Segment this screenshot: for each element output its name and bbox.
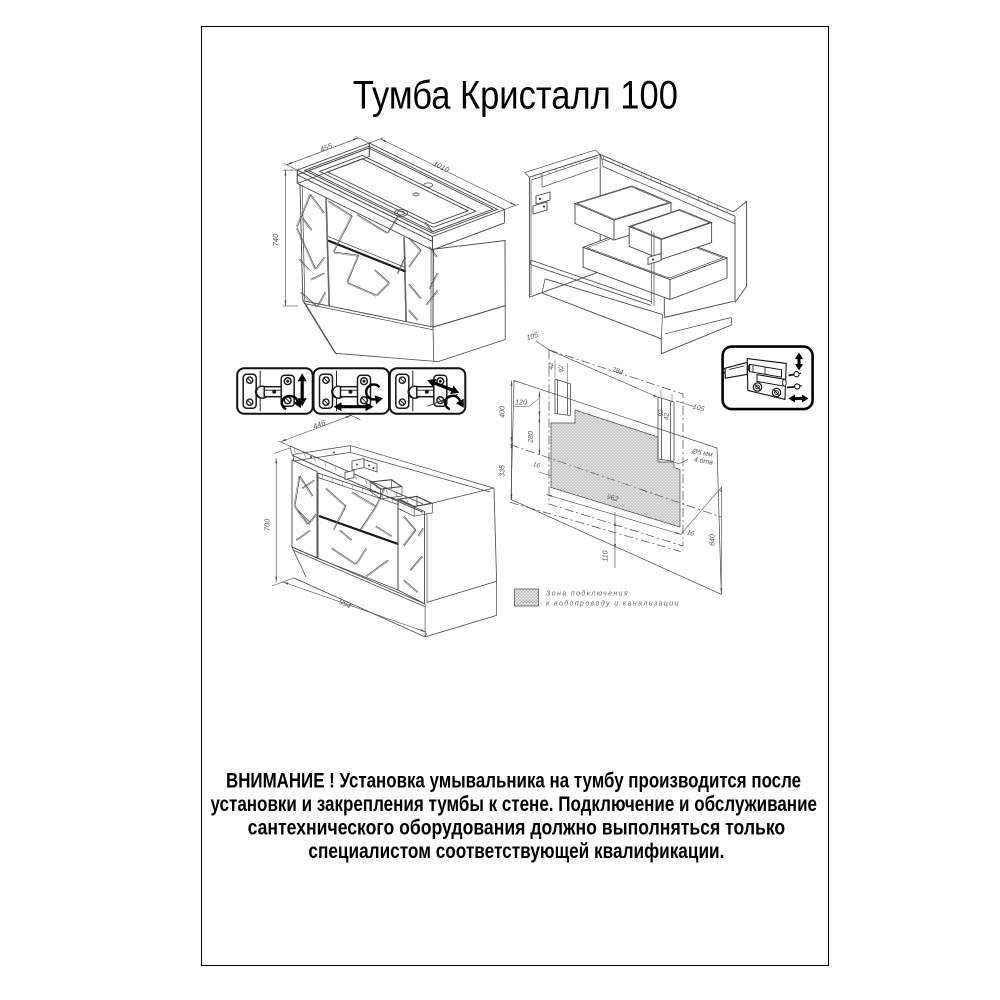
svg-text:42: 42 <box>664 413 671 421</box>
svg-text:92: 92 <box>558 365 565 373</box>
svg-text:640: 640 <box>710 534 717 546</box>
svg-text:16: 16 <box>686 529 695 538</box>
svg-text:специалистом соответствующей к: специалистом соответствующей квалификаци… <box>308 839 724 863</box>
svg-text:ВНИМАНИЕ ! Установка умывальни: ВНИМАНИЕ ! Установка умывальника на тумб… <box>226 768 801 792</box>
svg-text:740: 740 <box>271 233 280 246</box>
svg-text:105: 105 <box>692 404 705 414</box>
svg-text:Зона подключения: Зона подключения <box>546 590 629 598</box>
svg-text:сантехнического оборудования д: сантехнического оборудования должно выпо… <box>248 816 786 840</box>
svg-text:120: 120 <box>515 400 527 407</box>
svg-text:335: 335 <box>500 465 507 477</box>
svg-text:455: 455 <box>319 141 335 154</box>
svg-text:400: 400 <box>500 406 507 418</box>
svg-text:105: 105 <box>526 332 539 342</box>
svg-text:42: 42 <box>548 362 555 370</box>
svg-text:Тумба Кристалл 100: Тумба Кристалл 100 <box>353 74 678 118</box>
svg-text:к водопроводу и канализации: к водопроводу и канализации <box>546 600 680 608</box>
svg-text:установки и закрепления тумбы: установки и закрепления тумбы к стене. П… <box>211 792 818 816</box>
svg-text:16: 16 <box>532 461 541 470</box>
svg-text:280: 280 <box>528 431 535 444</box>
svg-text:994: 994 <box>337 597 352 610</box>
svg-text:700: 700 <box>263 518 272 531</box>
svg-text:784: 784 <box>611 367 624 377</box>
svg-text:110: 110 <box>603 550 610 561</box>
svg-text:446: 446 <box>312 418 328 431</box>
